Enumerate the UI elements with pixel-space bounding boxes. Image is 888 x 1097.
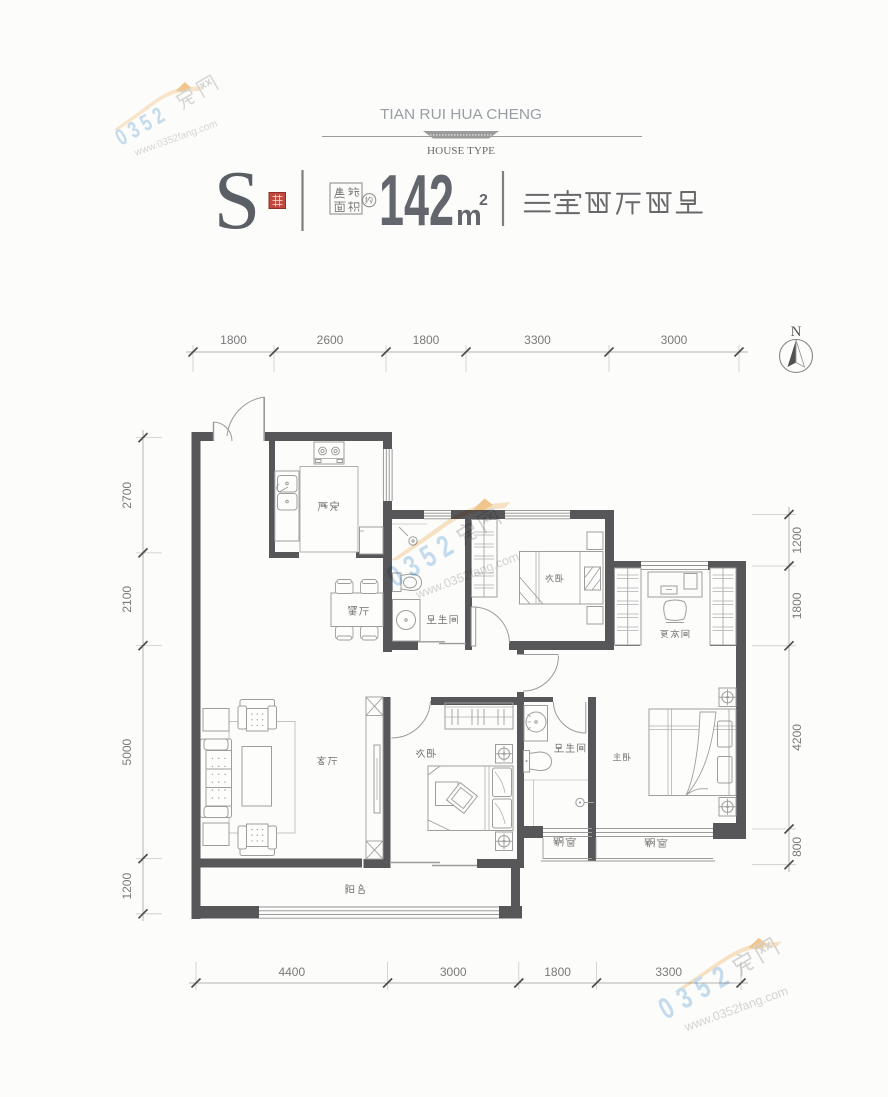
svg-text:3300: 3300 <box>655 965 682 979</box>
svg-text:m: m <box>456 200 482 232</box>
svg-text:TIAN RUI HUA CHENG: TIAN RUI HUA CHENG <box>380 106 542 123</box>
svg-text:800: 800 <box>790 837 804 857</box>
svg-text:3300: 3300 <box>524 333 551 347</box>
svg-text:1200: 1200 <box>120 873 134 900</box>
svg-text:4200: 4200 <box>790 724 804 751</box>
svg-text:1800: 1800 <box>790 592 804 619</box>
svg-text:4400: 4400 <box>278 965 305 979</box>
svg-text:S: S <box>214 154 261 247</box>
svg-text:HOUSE TYPE: HOUSE TYPE <box>427 146 495 157</box>
svg-text:1200: 1200 <box>790 527 804 554</box>
svg-text:3000: 3000 <box>440 965 467 979</box>
svg-text:1800: 1800 <box>544 965 571 979</box>
svg-text:2700: 2700 <box>120 482 134 509</box>
svg-text:1800: 1800 <box>220 333 247 347</box>
svg-text:N: N <box>791 324 802 340</box>
svg-text:5000: 5000 <box>120 738 134 765</box>
svg-text:1800: 1800 <box>413 333 440 347</box>
svg-text:3000: 3000 <box>661 333 688 347</box>
svg-text:2100: 2100 <box>120 586 134 613</box>
svg-text:142: 142 <box>379 161 454 241</box>
svg-text:2600: 2600 <box>317 333 344 347</box>
svg-text:2: 2 <box>479 192 488 209</box>
